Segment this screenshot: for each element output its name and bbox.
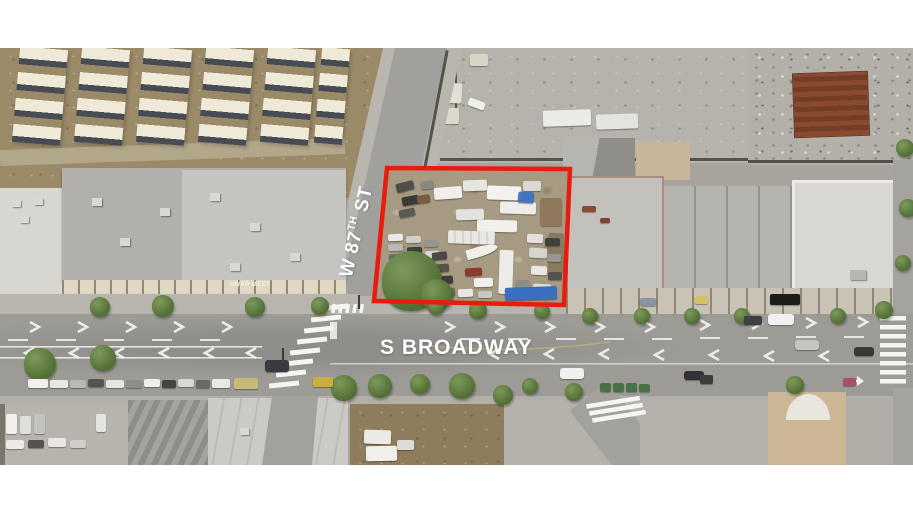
vehicle bbox=[529, 248, 547, 259]
page-background: SWAP MEET bbox=[0, 0, 913, 514]
vehicle bbox=[178, 379, 194, 387]
tan-building bbox=[636, 142, 690, 180]
vehicle bbox=[406, 236, 421, 244]
tree bbox=[90, 297, 110, 317]
street-label-s-broadway: S BROADWAY bbox=[380, 336, 533, 360]
tree bbox=[152, 295, 174, 317]
tree bbox=[24, 348, 56, 380]
tree bbox=[895, 255, 911, 271]
vehicle bbox=[417, 194, 431, 204]
tree bbox=[786, 376, 804, 394]
storefront-sign-blue bbox=[640, 298, 656, 306]
commercial-roofs bbox=[664, 186, 792, 298]
vehicle bbox=[88, 379, 104, 387]
tree bbox=[428, 299, 444, 315]
vehicle bbox=[531, 266, 547, 276]
rooftop-unit bbox=[92, 198, 102, 206]
vehicle bbox=[34, 414, 45, 434]
vehicle bbox=[388, 244, 403, 252]
storefront-facade: SWAP MEET bbox=[62, 280, 346, 294]
rooftop-unit bbox=[34, 198, 43, 205]
vehicle bbox=[458, 289, 473, 298]
aerial-photo: SWAP MEET bbox=[0, 48, 913, 465]
blue-tarp bbox=[505, 286, 557, 301]
storefront-sign-yellow bbox=[695, 296, 708, 304]
rooftop-unit bbox=[850, 270, 866, 280]
vehicle bbox=[313, 377, 333, 387]
pink-tarp bbox=[843, 378, 856, 386]
trailer bbox=[543, 109, 592, 127]
building-edge bbox=[0, 404, 5, 465]
vehicle bbox=[560, 368, 584, 379]
tree bbox=[449, 373, 475, 399]
box-truck bbox=[463, 180, 487, 192]
vehicle bbox=[106, 380, 124, 388]
box-truck bbox=[434, 186, 463, 200]
brown-roof-building bbox=[792, 71, 870, 139]
junk-pile bbox=[540, 198, 562, 226]
vehicle bbox=[744, 316, 762, 325]
vehicle bbox=[465, 268, 482, 277]
tree bbox=[331, 375, 357, 401]
rooftop-unit bbox=[240, 428, 249, 435]
tree bbox=[899, 199, 913, 217]
dumpster bbox=[700, 375, 713, 384]
vehicle bbox=[96, 414, 106, 432]
townhouse-row bbox=[260, 48, 316, 146]
rooftop-planter bbox=[582, 206, 596, 212]
rooftop-unit bbox=[160, 208, 170, 216]
rooftop-unit bbox=[120, 238, 130, 246]
box-truck bbox=[456, 209, 484, 221]
trailer bbox=[596, 113, 638, 129]
tree bbox=[534, 303, 550, 319]
street-label-text: ST bbox=[350, 185, 378, 220]
vehicle bbox=[421, 180, 435, 189]
green-bin bbox=[613, 383, 624, 392]
vehicle bbox=[126, 380, 142, 388]
vehicle bbox=[395, 180, 415, 193]
rooftop-unit bbox=[230, 263, 240, 271]
building-sign: SWAP MEET bbox=[230, 282, 270, 288]
tree bbox=[582, 308, 598, 324]
vehicle bbox=[366, 446, 397, 462]
cross-street-right bbox=[893, 160, 913, 320]
vehicle bbox=[388, 234, 403, 242]
green-bin bbox=[639, 384, 650, 392]
vehicle bbox=[70, 380, 86, 388]
tree bbox=[410, 374, 430, 394]
tree bbox=[493, 385, 513, 405]
tree bbox=[830, 308, 846, 324]
vehicle bbox=[854, 347, 874, 356]
vehicle bbox=[6, 414, 17, 434]
vehicle bbox=[364, 430, 391, 445]
rooftop-unit bbox=[12, 200, 21, 207]
vehicle bbox=[196, 380, 210, 388]
brick-parapet-building bbox=[566, 176, 664, 296]
tree bbox=[896, 139, 913, 157]
townhouse-row bbox=[136, 48, 192, 146]
street-label-superscript: TH bbox=[347, 215, 361, 232]
box-truck bbox=[523, 181, 541, 191]
vehicle bbox=[20, 416, 31, 434]
pavement bbox=[846, 398, 894, 465]
green-bin bbox=[600, 383, 611, 392]
vehicle bbox=[432, 251, 448, 261]
vehicle bbox=[768, 314, 794, 325]
tree bbox=[469, 301, 487, 319]
townhouse-row bbox=[198, 48, 254, 146]
box-truck bbox=[487, 185, 521, 200]
vehicle bbox=[28, 379, 48, 388]
vehicle bbox=[474, 278, 493, 288]
tree bbox=[684, 308, 700, 324]
north-sidewalk bbox=[0, 294, 360, 314]
vehicle bbox=[234, 378, 258, 389]
rooftop-unit bbox=[290, 253, 300, 261]
vehicle bbox=[48, 438, 66, 447]
vehicle bbox=[478, 291, 492, 298]
yard-fence bbox=[748, 160, 913, 163]
rooftop-unit bbox=[210, 193, 220, 201]
vehicle bbox=[6, 440, 24, 449]
blue-tarp-small bbox=[518, 191, 535, 203]
vehicle bbox=[28, 440, 44, 448]
green-bin bbox=[626, 383, 637, 392]
parking-lot bbox=[0, 404, 128, 465]
vehicle bbox=[527, 234, 543, 244]
cross-street-right bbox=[893, 388, 913, 465]
pavement bbox=[640, 400, 768, 465]
tree bbox=[368, 374, 392, 398]
motorhome bbox=[448, 230, 495, 245]
vehicle bbox=[547, 254, 561, 262]
vehicle bbox=[70, 440, 86, 448]
swap-meet-building-roof bbox=[182, 170, 346, 280]
vehicle bbox=[548, 272, 562, 280]
tree bbox=[90, 345, 116, 371]
tree bbox=[875, 301, 893, 319]
townhouse-row bbox=[74, 48, 130, 146]
vehicle bbox=[265, 360, 289, 372]
vehicle bbox=[397, 440, 414, 450]
tree bbox=[522, 378, 538, 394]
vehicle bbox=[162, 380, 176, 388]
vehicle bbox=[424, 240, 438, 247]
townhouse-row bbox=[12, 48, 68, 146]
ridged-roof bbox=[128, 400, 208, 465]
vehicle bbox=[398, 207, 415, 218]
vehicle bbox=[144, 379, 160, 387]
street-label-text: W 87 bbox=[336, 229, 368, 279]
rooftop-unit bbox=[20, 216, 29, 223]
vehicle bbox=[795, 340, 819, 350]
vehicle bbox=[545, 238, 560, 246]
tree bbox=[565, 383, 583, 401]
vehicle bbox=[212, 379, 230, 388]
tree bbox=[634, 308, 650, 324]
rooftop-planter bbox=[600, 218, 610, 223]
storefront-sign-black bbox=[770, 294, 800, 305]
storage-container bbox=[470, 54, 488, 66]
rooftop-unit bbox=[250, 223, 260, 231]
vehicle bbox=[50, 380, 68, 388]
storefront-facade bbox=[566, 288, 896, 314]
boat bbox=[465, 242, 499, 260]
tree bbox=[245, 297, 265, 317]
